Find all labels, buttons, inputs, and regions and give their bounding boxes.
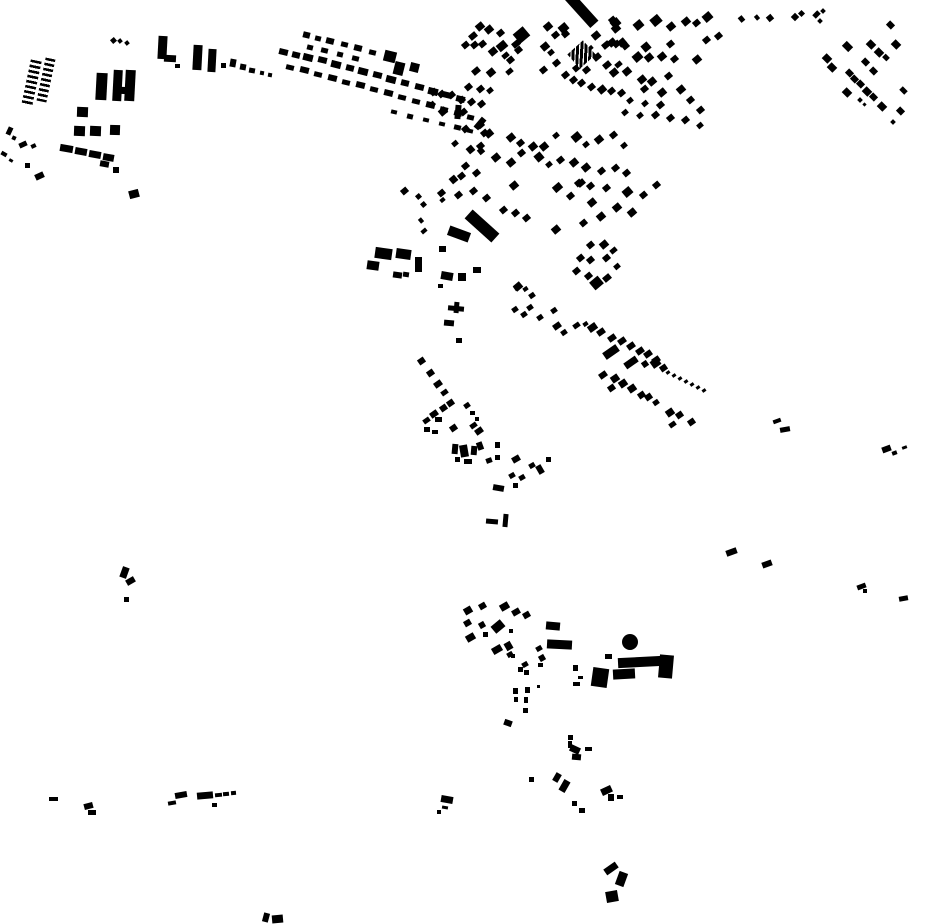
building-footprint bbox=[515, 138, 524, 147]
building-footprint bbox=[605, 890, 619, 903]
building-footprint bbox=[192, 44, 202, 69]
building-footprint bbox=[636, 111, 644, 119]
building-footprint bbox=[603, 861, 618, 875]
building-footprint bbox=[432, 430, 438, 434]
building-footprint bbox=[109, 36, 116, 43]
building-footprint bbox=[478, 621, 486, 629]
building-footprint bbox=[695, 105, 704, 114]
building-footprint bbox=[76, 107, 87, 117]
building-footprint bbox=[342, 79, 351, 86]
building-footprint bbox=[596, 166, 605, 175]
building-footprint bbox=[474, 426, 484, 436]
building-footprint bbox=[327, 74, 337, 82]
building-footprint bbox=[317, 56, 327, 64]
building-footprint bbox=[486, 518, 498, 524]
building-footprint bbox=[453, 124, 461, 131]
building-footprint bbox=[516, 148, 525, 157]
building-footprint bbox=[175, 64, 180, 68]
building-footprint bbox=[546, 457, 551, 462]
building-footprint bbox=[640, 41, 651, 52]
building-footprint bbox=[638, 190, 647, 199]
building-footprint bbox=[471, 66, 481, 76]
building-footprint bbox=[539, 141, 550, 152]
building-footprint bbox=[558, 779, 570, 793]
building-footprint bbox=[399, 186, 408, 195]
building-footprint bbox=[820, 8, 826, 14]
building-footprint bbox=[591, 666, 609, 687]
building-footprint bbox=[503, 641, 513, 651]
building-footprint bbox=[547, 48, 555, 56]
circular-building bbox=[622, 634, 638, 650]
building-footprint bbox=[616, 88, 625, 97]
building-footprint bbox=[672, 373, 677, 378]
building-footprint bbox=[612, 202, 623, 213]
building-footprint bbox=[491, 643, 503, 654]
building-footprint bbox=[513, 483, 518, 488]
building-footprint bbox=[898, 595, 908, 601]
building-footprint bbox=[447, 226, 471, 243]
building-footprint bbox=[175, 791, 188, 799]
building-footprint bbox=[521, 213, 530, 222]
building-footprint bbox=[88, 810, 96, 815]
building-footprint bbox=[459, 444, 469, 457]
building-footprint bbox=[895, 106, 904, 115]
building-footprint bbox=[526, 303, 534, 311]
building-footprint bbox=[545, 160, 553, 168]
building-footprint bbox=[466, 114, 474, 121]
building-footprint bbox=[868, 66, 877, 75]
building-footprint bbox=[602, 60, 612, 70]
building-footprint bbox=[119, 566, 129, 579]
building-footprint bbox=[597, 84, 608, 95]
building-footprint bbox=[569, 744, 581, 755]
building-footprint bbox=[299, 66, 309, 74]
building-footprint bbox=[665, 39, 674, 48]
building-footprint bbox=[212, 803, 217, 807]
building-footprint bbox=[207, 48, 216, 71]
building-footprint bbox=[655, 100, 664, 109]
building-footprint bbox=[701, 35, 710, 44]
building-footprint bbox=[626, 96, 634, 104]
building-footprint bbox=[464, 632, 475, 643]
building-footprint bbox=[891, 39, 902, 50]
building-footprint bbox=[514, 697, 518, 702]
building-footprint bbox=[483, 632, 488, 637]
building-footprint bbox=[551, 224, 562, 235]
building-footprint bbox=[552, 131, 560, 139]
building-footprint bbox=[271, 915, 283, 924]
building-footprint bbox=[891, 450, 897, 455]
building-footprint bbox=[681, 16, 692, 27]
building-footprint bbox=[503, 719, 513, 727]
building-footprint bbox=[437, 810, 441, 814]
building-footprint bbox=[570, 131, 582, 143]
building-footprint bbox=[578, 218, 587, 227]
building-footprint bbox=[676, 84, 687, 95]
building-footprint bbox=[506, 132, 517, 143]
building-footprint bbox=[508, 471, 516, 478]
building-footprint bbox=[599, 239, 610, 250]
building-footprint bbox=[164, 54, 176, 62]
building-footprint bbox=[885, 20, 894, 29]
building-footprint bbox=[684, 379, 689, 384]
building-footprint bbox=[666, 370, 671, 375]
building-footprint bbox=[657, 87, 668, 98]
building-footprint bbox=[737, 15, 745, 23]
building-footprint bbox=[353, 44, 362, 52]
building-footprint bbox=[475, 417, 479, 421]
building-footprint bbox=[585, 747, 592, 751]
building-footprint bbox=[528, 291, 536, 299]
building-footprint bbox=[229, 59, 236, 68]
building-footprint bbox=[617, 795, 623, 799]
building-footprint bbox=[555, 155, 564, 164]
building-footprint bbox=[701, 11, 713, 23]
building-footprint bbox=[860, 57, 869, 66]
building-footprint bbox=[564, 0, 599, 28]
building-footprint bbox=[551, 181, 562, 192]
building-footprint bbox=[340, 41, 348, 48]
building-footprint bbox=[468, 31, 478, 41]
building-footprint bbox=[438, 284, 443, 288]
building-footprint bbox=[460, 161, 469, 170]
building-footprint bbox=[393, 60, 406, 75]
building-footprint bbox=[543, 21, 554, 32]
building-footprint bbox=[602, 273, 612, 283]
building-footprint bbox=[464, 459, 472, 464]
building-footprint bbox=[465, 209, 500, 242]
building-footprint bbox=[469, 40, 478, 49]
building-footprint bbox=[528, 141, 539, 152]
building-footprint bbox=[571, 754, 580, 761]
building-footprint bbox=[88, 150, 101, 159]
building-footprint bbox=[370, 86, 379, 93]
building-footprint bbox=[538, 663, 543, 667]
building-footprint bbox=[610, 163, 619, 172]
building-footprint bbox=[477, 147, 485, 155]
building-footprint bbox=[451, 139, 459, 147]
building-footprint bbox=[568, 735, 573, 740]
building-footprint bbox=[442, 805, 448, 809]
building-footprint bbox=[302, 52, 313, 61]
building-footprint bbox=[221, 63, 226, 68]
building-footprint bbox=[286, 64, 295, 71]
building-footprint bbox=[591, 30, 602, 41]
building-footprint bbox=[601, 183, 610, 192]
building-footprint bbox=[761, 559, 772, 568]
building-footprint bbox=[439, 246, 446, 252]
building-footprint bbox=[398, 94, 407, 101]
building-footprint bbox=[857, 97, 863, 103]
building-footprint bbox=[420, 228, 427, 235]
building-footprint bbox=[862, 102, 866, 106]
building-footprint bbox=[452, 444, 459, 454]
building-footprint bbox=[685, 95, 694, 104]
building-footprint bbox=[529, 777, 534, 782]
building-footprint bbox=[657, 51, 668, 62]
building-footprint bbox=[112, 69, 123, 100]
building-footprint bbox=[647, 76, 658, 87]
building-footprint bbox=[827, 62, 838, 73]
building-footprint bbox=[524, 670, 529, 675]
building-footprint bbox=[491, 152, 502, 163]
building-footprint bbox=[491, 619, 506, 634]
building-footprint bbox=[632, 19, 644, 31]
building-footprint bbox=[608, 794, 614, 801]
building-footprint bbox=[463, 401, 471, 409]
building-footprint bbox=[453, 301, 459, 312]
building-footprint bbox=[391, 109, 398, 114]
building-footprint bbox=[11, 135, 16, 140]
building-footprint bbox=[372, 71, 382, 79]
building-footprint bbox=[419, 200, 426, 207]
building-footprint bbox=[550, 30, 559, 39]
building-footprint bbox=[436, 188, 445, 197]
building-footprint bbox=[320, 47, 328, 54]
building-footprint bbox=[124, 69, 136, 100]
building-footprint bbox=[466, 97, 475, 106]
building-footprint bbox=[573, 682, 580, 686]
building-footprint bbox=[546, 639, 571, 649]
building-footprint bbox=[498, 205, 507, 214]
building-footprint bbox=[678, 376, 683, 381]
building-footprint bbox=[314, 71, 323, 78]
building-footprint bbox=[614, 871, 627, 887]
building-footprint bbox=[502, 513, 508, 526]
building-footprint bbox=[598, 370, 608, 380]
building-footprint bbox=[569, 157, 580, 168]
building-footprint bbox=[351, 55, 359, 62]
building-footprint bbox=[522, 286, 528, 292]
building-footprint bbox=[110, 125, 120, 135]
building-footprint bbox=[49, 797, 58, 801]
building-footprint bbox=[582, 140, 590, 148]
building-footprint bbox=[470, 411, 475, 415]
building-footprint bbox=[565, 191, 574, 200]
building-footprint bbox=[513, 688, 518, 694]
building-footprint bbox=[585, 181, 594, 190]
building-footprint bbox=[438, 404, 447, 413]
building-footprint bbox=[484, 24, 495, 35]
building-footprint bbox=[465, 144, 475, 154]
building-footprint bbox=[5, 126, 13, 135]
building-footprint bbox=[424, 427, 430, 432]
building-footprint bbox=[863, 589, 867, 593]
building-footprint bbox=[623, 355, 638, 369]
building-footprint bbox=[620, 141, 628, 149]
building-footprint bbox=[579, 808, 585, 813]
building-footprint bbox=[418, 217, 424, 223]
building-footprint bbox=[495, 455, 500, 460]
building-footprint bbox=[262, 912, 270, 922]
building-footprint bbox=[471, 168, 480, 177]
building-footprint bbox=[639, 84, 648, 93]
building-footprint bbox=[463, 82, 472, 91]
building-footprint bbox=[444, 320, 454, 327]
building-footprint bbox=[855, 79, 864, 88]
building-footprint bbox=[882, 53, 890, 61]
building-footprint bbox=[551, 58, 560, 67]
building-footprint bbox=[314, 35, 321, 41]
building-footprint bbox=[485, 457, 492, 464]
building-footprint bbox=[458, 273, 466, 281]
building-footprint bbox=[560, 328, 568, 336]
building-footprint bbox=[571, 266, 580, 275]
building-footprint bbox=[25, 163, 30, 168]
building-footprint bbox=[606, 384, 615, 393]
building-footprint bbox=[492, 484, 504, 492]
building-footprint bbox=[510, 208, 519, 217]
building-footprint bbox=[425, 369, 434, 378]
building-footprint bbox=[552, 321, 562, 331]
building-footprint bbox=[511, 654, 515, 658]
building-footprint bbox=[462, 619, 471, 628]
building-footprint bbox=[476, 441, 484, 451]
building-footprint bbox=[680, 115, 689, 124]
building-footprint bbox=[538, 654, 546, 662]
building-footprint bbox=[550, 306, 558, 314]
building-footprint bbox=[669, 54, 678, 63]
building-footprint bbox=[651, 180, 660, 189]
building-footprint bbox=[663, 71, 672, 80]
building-footprint bbox=[899, 86, 907, 94]
building-footprint bbox=[766, 14, 774, 22]
building-footprint bbox=[613, 668, 635, 679]
building-footprint bbox=[877, 101, 888, 112]
building-footprint bbox=[448, 424, 457, 433]
building-footprint bbox=[412, 98, 421, 105]
building-footprint bbox=[89, 126, 100, 136]
building-footprint bbox=[552, 772, 562, 783]
building-footprint bbox=[644, 52, 655, 63]
building-footprint bbox=[124, 597, 129, 602]
building-footprint bbox=[330, 59, 341, 68]
building-footprint bbox=[59, 143, 73, 152]
building-footprint bbox=[780, 426, 791, 433]
building-footprint bbox=[537, 685, 540, 688]
building-footprint bbox=[400, 79, 409, 87]
building-footprint bbox=[617, 336, 627, 346]
building-footprint bbox=[385, 74, 396, 83]
building-footprint bbox=[511, 305, 519, 313]
building-footprint bbox=[422, 416, 431, 424]
building-footprint bbox=[575, 253, 584, 262]
building-footprint bbox=[621, 108, 629, 116]
building-footprint bbox=[268, 73, 273, 78]
building-footprint bbox=[453, 190, 462, 199]
building-footprint bbox=[440, 271, 453, 281]
building-footprint bbox=[18, 140, 27, 148]
building-footprint bbox=[30, 143, 36, 149]
building-footprint bbox=[240, 64, 247, 71]
building-footprint bbox=[626, 341, 636, 351]
building-footprint bbox=[817, 18, 823, 24]
building-footprint bbox=[866, 39, 877, 50]
building-footprint bbox=[392, 271, 402, 278]
building-footprint bbox=[631, 51, 643, 63]
building-footprint bbox=[605, 654, 612, 659]
building-footprint bbox=[812, 10, 820, 18]
building-footprint bbox=[477, 602, 486, 611]
building-footprint bbox=[99, 160, 109, 167]
building-footprint bbox=[278, 48, 288, 56]
building-footprint bbox=[668, 420, 677, 428]
building-footprint bbox=[509, 180, 520, 191]
building-footprint bbox=[336, 51, 343, 57]
building-footprint bbox=[249, 67, 256, 73]
building-footprint bbox=[692, 54, 703, 65]
building-footprint bbox=[586, 82, 595, 91]
building-footprint bbox=[691, 18, 700, 27]
building-footprint bbox=[505, 67, 514, 75]
building-footprint bbox=[641, 99, 649, 107]
building-footprint bbox=[439, 121, 446, 126]
building-footprint bbox=[658, 654, 674, 678]
building-footprint bbox=[546, 621, 561, 630]
building-footprint bbox=[468, 186, 477, 195]
building-footprint bbox=[713, 31, 722, 40]
building-footprint bbox=[357, 66, 368, 75]
building-footprint bbox=[607, 333, 617, 343]
building-footprint bbox=[409, 62, 420, 73]
building-footprint bbox=[415, 257, 422, 272]
building-footprint bbox=[608, 130, 617, 139]
building-footprint bbox=[9, 158, 14, 163]
building-footprint bbox=[602, 344, 620, 360]
building-footprint bbox=[581, 65, 590, 74]
building-footprint bbox=[665, 113, 674, 122]
building-footprint bbox=[627, 383, 638, 393]
building-footprint bbox=[291, 51, 300, 59]
building-footprint bbox=[124, 40, 130, 46]
building-footprint bbox=[696, 121, 704, 129]
building-footprint bbox=[665, 407, 676, 417]
building-footprint bbox=[641, 360, 649, 368]
building-footprint bbox=[754, 14, 760, 20]
building-footprint bbox=[355, 81, 365, 89]
building-footprint bbox=[230, 791, 235, 795]
building-footprint bbox=[383, 89, 393, 97]
building-footprint bbox=[374, 246, 392, 259]
building-footprint bbox=[440, 795, 453, 804]
building-footprint bbox=[587, 197, 598, 208]
building-footprint bbox=[456, 338, 462, 343]
building-footprint bbox=[901, 445, 907, 450]
building-footprint bbox=[621, 168, 630, 177]
building-footprint bbox=[116, 86, 131, 94]
building-footprint bbox=[572, 321, 581, 329]
building-footprint bbox=[481, 193, 490, 202]
building-footprint bbox=[523, 708, 528, 713]
building-footprint bbox=[403, 271, 410, 277]
building-footprint bbox=[345, 64, 354, 72]
building-footprint bbox=[302, 31, 310, 39]
building-footprint bbox=[416, 357, 425, 366]
building-footprint bbox=[594, 134, 605, 145]
building-footprint bbox=[414, 192, 421, 199]
building-footprint bbox=[433, 379, 443, 389]
building-footprint bbox=[535, 644, 543, 651]
building-footprint bbox=[842, 87, 853, 98]
building-footprint bbox=[477, 39, 486, 48]
building-footprint bbox=[520, 310, 528, 318]
building-footprint bbox=[511, 454, 521, 463]
building-footprint bbox=[650, 110, 659, 119]
building-footprint bbox=[498, 601, 509, 612]
building-footprint bbox=[618, 656, 662, 668]
building-footprint bbox=[627, 207, 638, 218]
building-footprint bbox=[596, 211, 607, 222]
